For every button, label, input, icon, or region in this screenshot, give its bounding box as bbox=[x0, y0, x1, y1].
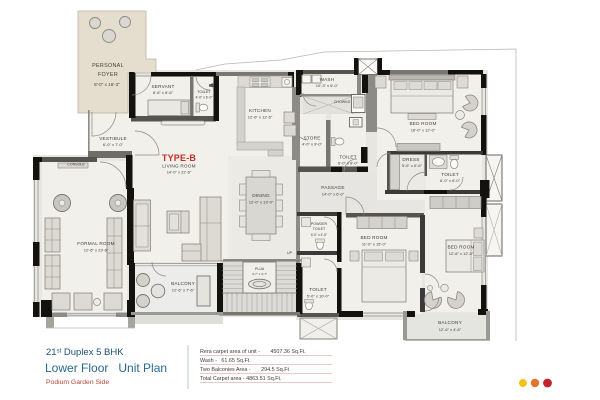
svg-text:Wash - 61.65 Sq.Ft.: Wash - 61.65 Sq.Ft. bbox=[200, 358, 251, 364]
svg-text:4'-7" x 4'-7": 4'-7" x 4'-7" bbox=[252, 272, 267, 276]
svg-text:12'-6" x 7'-6": 12'-6" x 7'-6" bbox=[172, 288, 195, 293]
svg-text:UP: UP bbox=[287, 251, 293, 255]
svg-text:TYPE-B: TYPE-B bbox=[162, 153, 197, 163]
svg-text:10'-3" x 6'-0": 10'-3" x 6'-0" bbox=[316, 83, 339, 88]
svg-text:6'-0" x 8'-0": 6'-0" x 8'-0" bbox=[338, 161, 359, 166]
svg-text:SERVANT: SERVANT bbox=[151, 84, 174, 89]
svg-text:8'-0" x 6'-0": 8'-0" x 6'-0" bbox=[440, 178, 461, 183]
svg-text:8'-6" x 6'-6": 8'-6" x 6'-6" bbox=[153, 90, 174, 95]
svg-text:BED ROOM: BED ROOM bbox=[360, 235, 387, 240]
svg-text:11'-0" x 15'-0": 11'-0" x 15'-0" bbox=[362, 242, 387, 247]
svg-text:TOILET: TOILET bbox=[309, 287, 327, 292]
svg-text:TOILET: TOILET bbox=[197, 89, 211, 94]
svg-text:PERSONAL: PERSONAL bbox=[92, 63, 124, 69]
svg-text:6'-0" x 7'-0": 6'-0" x 7'-0" bbox=[103, 142, 124, 147]
svg-text:12'-6" x 12'-0": 12'-6" x 12'-0" bbox=[449, 251, 474, 256]
svg-text:Podium Garden Side: Podium Garden Side bbox=[46, 379, 109, 386]
svg-text:5'-0" x 10'-0": 5'-0" x 10'-0" bbox=[307, 294, 330, 299]
svg-text:TOILET: TOILET bbox=[313, 227, 326, 231]
svg-text:PASSAGE: PASSAGE bbox=[321, 185, 344, 190]
svg-text:WASH: WASH bbox=[320, 77, 335, 82]
svg-text:FORMAL ROOM: FORMAL ROOM bbox=[77, 241, 114, 246]
svg-text:POWDER: POWDER bbox=[311, 222, 328, 226]
svg-text:8'-0" x 16'-3": 8'-0" x 16'-3" bbox=[94, 82, 120, 87]
svg-text:6'-0" x 4'-6": 6'-0" x 4'-6" bbox=[311, 233, 327, 237]
svg-text:DRESS: DRESS bbox=[402, 157, 419, 162]
svg-text:PUJA: PUJA bbox=[255, 267, 265, 271]
svg-text:BALCONY: BALCONY bbox=[438, 320, 462, 325]
svg-text:14'-0" x 6'-0": 14'-0" x 6'-0" bbox=[322, 192, 345, 197]
svg-text:Total Carpet area - 4863.51 Sq: Total Carpet area - 4863.51 Sq.Ft. bbox=[200, 376, 282, 382]
svg-text:5'-6" x 6'-6": 5'-6" x 6'-6" bbox=[402, 163, 423, 168]
svg-text:14'-0" x 22'-6": 14'-0" x 22'-6" bbox=[167, 170, 192, 175]
svg-text:LIVING ROOM: LIVING ROOM bbox=[162, 164, 195, 169]
svg-text:4'-0" x 9'-0": 4'-0" x 9'-0" bbox=[302, 142, 323, 147]
svg-text:Two Balconies Area - 294: Two Balconies Area - 294.5 Sq.Ft bbox=[200, 367, 289, 373]
svg-text:TOILET: TOILET bbox=[441, 172, 459, 177]
svg-text:DINING: DINING bbox=[252, 193, 270, 198]
svg-text:VESTIBULE: VESTIBULE bbox=[99, 136, 127, 141]
svg-text:STORE: STORE bbox=[303, 136, 320, 141]
svg-text:12'-6" x 23'-6": 12'-6" x 23'-6" bbox=[84, 248, 109, 253]
svg-text:BED ROOM: BED ROOM bbox=[409, 121, 436, 126]
svg-text:BED ROOM: BED ROOM bbox=[447, 245, 474, 250]
svg-text:12'-0" x 13'-0": 12'-0" x 13'-0" bbox=[249, 200, 274, 205]
svg-text:CONSOLE: CONSOLE bbox=[67, 163, 85, 167]
svg-text:BALCONY: BALCONY bbox=[171, 281, 195, 286]
svg-text:12'-6" x 12'-6": 12'-6" x 12'-6" bbox=[248, 115, 273, 120]
svg-text:TOILET: TOILET bbox=[339, 155, 357, 160]
svg-text:CHOWKD: CHOWKD bbox=[334, 100, 351, 104]
svg-text:16'-0" x 12'-0": 16'-0" x 12'-0" bbox=[411, 128, 436, 133]
svg-text:4'-0" x 6'-0": 4'-0" x 6'-0" bbox=[195, 96, 213, 100]
svg-text:12'-6" x 4'-6": 12'-6" x 4'-6" bbox=[439, 327, 462, 332]
svg-text:KITCHEN: KITCHEN bbox=[249, 108, 271, 113]
svg-text:Lower Floor Unit Plan: Lower Floor Unit Plan bbox=[45, 361, 167, 375]
svg-text:FOYER: FOYER bbox=[98, 72, 118, 78]
svg-text:Rera carpet area of unit -: Rera carpet area of unit - 4507.36 Sq.Ft… bbox=[200, 349, 306, 355]
